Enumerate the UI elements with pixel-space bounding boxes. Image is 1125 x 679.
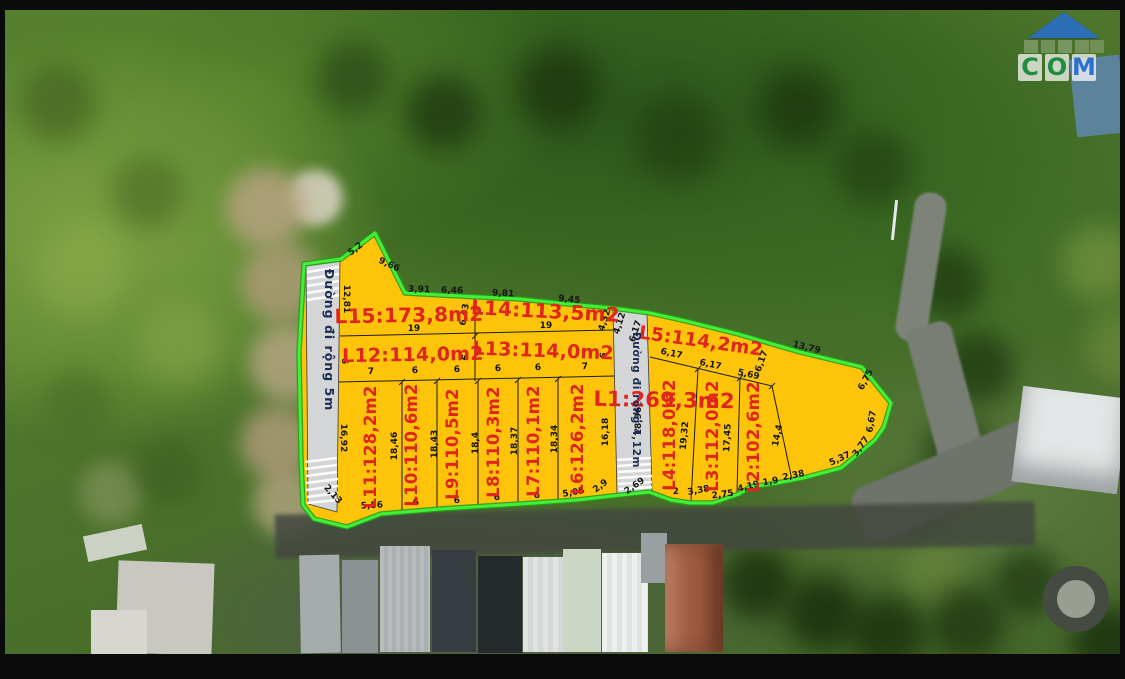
dimension-label: 18,43 [430,430,440,458]
dimension-label: 6,46 [441,286,464,297]
plot-label-L12: L12:114,0m2 [342,343,484,367]
watermark-logo: C O M [1014,12,1114,84]
road-412m-label: Đường đi rộng 4,12m [630,332,642,468]
plot-label-L1: L1:269,3m2 [593,387,735,413]
dimension-label: 16,18 [601,418,611,446]
house-roof-icon [1028,12,1100,38]
plot-label-L11: L11:128,2m2 [361,385,380,508]
dimension-label: 7 [368,367,375,377]
dimension-label: 18,34 [550,425,560,453]
road-5m-label: Đường đi rộng 5m [322,269,337,411]
dimension-label: 18,37 [510,427,520,455]
dimension-label: 6 [412,366,419,376]
dimension-label: 16,92 [338,424,348,452]
plot-label-L10: L10:110,6m2 [402,383,421,506]
land-area-fill [299,233,891,527]
dimension-label: 6 [495,364,502,374]
watermark-faded-text [1024,40,1038,53]
watermark-letter: M [1072,54,1096,81]
dimension-label: 6 [535,363,542,373]
dimension-label: 18,46 [390,432,400,460]
land-plot-overlay: 5,2 9,66 3,91 6,46 9,81 9,45 19 19 6,43 … [0,0,1125,679]
plot-label-L6: L6:126,2m2 [568,383,587,494]
video-frame: 5,2 9,66 3,91 6,46 9,81 9,45 19 19 6,43 … [0,0,1125,679]
dimension-label: 6 [454,365,461,375]
dimension-label: 1,9 [762,476,779,489]
watermark-letter: C [1018,54,1042,81]
watermark-com-text: C O M [1018,54,1096,81]
plot-label-L9: L9:110,5m2 [443,388,462,499]
dimension-label: 18,4 [471,432,481,454]
plot-label-L2: L2:102,6m2 [744,381,763,492]
plot-label-L15: L15:173,8m2 [334,302,483,329]
watermark-letter: O [1045,54,1069,81]
dimension-label: 3,91 [408,285,431,296]
plot-label-L8: L8:110,3m2 [484,386,503,497]
dimension-label: 17,45 [722,423,733,452]
plot-label-L7: L7:110,1m2 [524,385,543,496]
